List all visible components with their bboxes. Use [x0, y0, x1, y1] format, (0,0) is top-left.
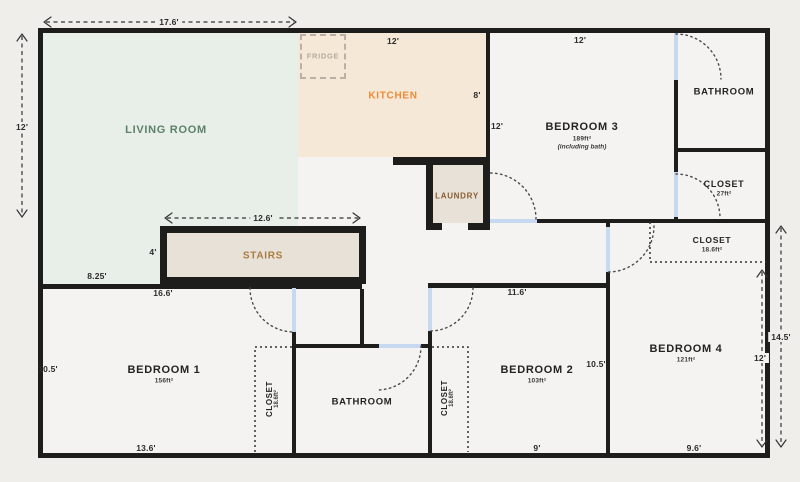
- bedroom2-label: BEDROOM 2: [501, 364, 574, 376]
- bedroom3-area: 189ft²: [573, 136, 592, 143]
- door-closet-top: [674, 172, 678, 217]
- closet1-area: 18.6ft²: [274, 381, 281, 417]
- arrowhead: [44, 17, 51, 27]
- arrowhead: [776, 226, 786, 233]
- bedroom1-area: 156ft²: [155, 378, 174, 385]
- arrowhead: [289, 17, 296, 27]
- bedroom1-label: BEDROOM 1: [128, 364, 201, 376]
- wall-exterior-left: [38, 28, 43, 458]
- dim-bedroom3-top: 12': [574, 35, 586, 45]
- dim-kitchen-right: 8': [473, 90, 480, 100]
- door-bathroom-top: [674, 33, 678, 80]
- door-bedroom2: [428, 288, 432, 331]
- floor-plan: LIVING ROOM KITCHEN FRIDGE LAUNDRY STAIR…: [0, 0, 800, 482]
- dim-stairs-width: 12.6': [250, 213, 276, 223]
- wall-laundry-stub-right: [468, 223, 490, 230]
- bedroom2-area: 103ft²: [528, 378, 547, 385]
- wall-exterior-top: [38, 28, 770, 33]
- door-bathroom-bottom: [379, 344, 421, 348]
- dim-bedroom2-right: 10.5': [586, 359, 606, 369]
- wall-laundry-right: [483, 157, 490, 230]
- wall-bedroom4-left-bottom: [606, 272, 610, 453]
- door-bedroom4: [606, 227, 610, 272]
- dim-bedroom2-top: 11.6': [507, 287, 526, 297]
- closet-hall-area: 18.6ft²: [702, 247, 723, 254]
- bedroom3-label: BEDROOM 3: [546, 121, 619, 133]
- dim-bedroom1-bottom: 13.6': [136, 443, 156, 453]
- wall-laundry-stub-left: [426, 223, 442, 230]
- wall-bedroom1-right: [292, 332, 296, 453]
- dim-bedroom4-height: 12': [751, 353, 769, 363]
- closet2-area: 18.6ft²: [449, 380, 456, 416]
- wall-exterior-right: [765, 28, 770, 458]
- closet-top-area: 27ft²: [717, 191, 732, 198]
- dim-bedroom1-top: 16.6': [153, 288, 173, 298]
- bedroom3-note: (including bath): [558, 144, 607, 151]
- dim-stairs-height: 4': [149, 247, 156, 257]
- bedroom4-label: BEDROOM 4: [650, 343, 723, 355]
- wall-laundry-left: [426, 157, 433, 230]
- dim-living-height: 12': [13, 122, 31, 132]
- door-bedroom3: [490, 219, 537, 223]
- arrowhead: [17, 210, 27, 217]
- wall-hall-main: [38, 284, 362, 289]
- dim-bedroom2-bottom: 9': [533, 443, 540, 453]
- closet-top-label: CLOSET: [704, 179, 745, 189]
- wall-bathroomtr-left: [674, 80, 678, 152]
- kitchen-label: KITCHEN: [368, 91, 417, 102]
- dim-kitchen-top: 12': [387, 36, 399, 46]
- closet1-label-group: CLOSET 18.6ft²: [265, 381, 281, 417]
- arrowhead: [17, 34, 27, 41]
- closet2-label-group: CLOSET 18.6ft²: [440, 380, 456, 416]
- dim-top-width: 17.6': [156, 17, 182, 27]
- wall-closettr-left-bottom: [674, 217, 678, 222]
- closet2-label: CLOSET: [440, 380, 449, 416]
- wall-bathroomtr-bottom: [674, 148, 770, 152]
- wall-vestibule-divider: [360, 289, 364, 346]
- dim-living-bottom: 8.25': [87, 271, 107, 281]
- wall-exterior-bottom: [38, 453, 770, 458]
- stairs-label: STAIRS: [243, 251, 283, 262]
- bedroom4-area: 121ft²: [677, 357, 696, 364]
- dim-bedroom1-left: 10.5': [38, 364, 58, 374]
- arrowhead: [776, 440, 786, 447]
- wall-bathroom-top-left: [292, 344, 379, 348]
- laundry-label: LAUNDRY: [435, 192, 479, 201]
- dim-bedroom4-bottom: 9.6': [687, 443, 702, 453]
- bathroom-top-label: BATHROOM: [694, 87, 755, 98]
- wall-bedroom3-bottom: [537, 219, 770, 223]
- wall-bedroom2-left: [428, 331, 432, 453]
- closet-hall-label: CLOSET: [693, 235, 732, 245]
- closet1-label: CLOSET: [265, 381, 274, 417]
- door-bedroom1: [292, 288, 296, 332]
- dim-right-height: 14.5': [768, 332, 794, 342]
- living-room-label: LIVING ROOM: [125, 124, 207, 136]
- wall-closettr-left-top: [674, 152, 678, 172]
- dim-bedroom3-left: 12': [491, 121, 503, 131]
- bathroom-bottom-label: BATHROOM: [332, 397, 393, 408]
- fridge-label: FRIDGE: [307, 52, 340, 61]
- wall-kitchen-bottom: [393, 157, 486, 165]
